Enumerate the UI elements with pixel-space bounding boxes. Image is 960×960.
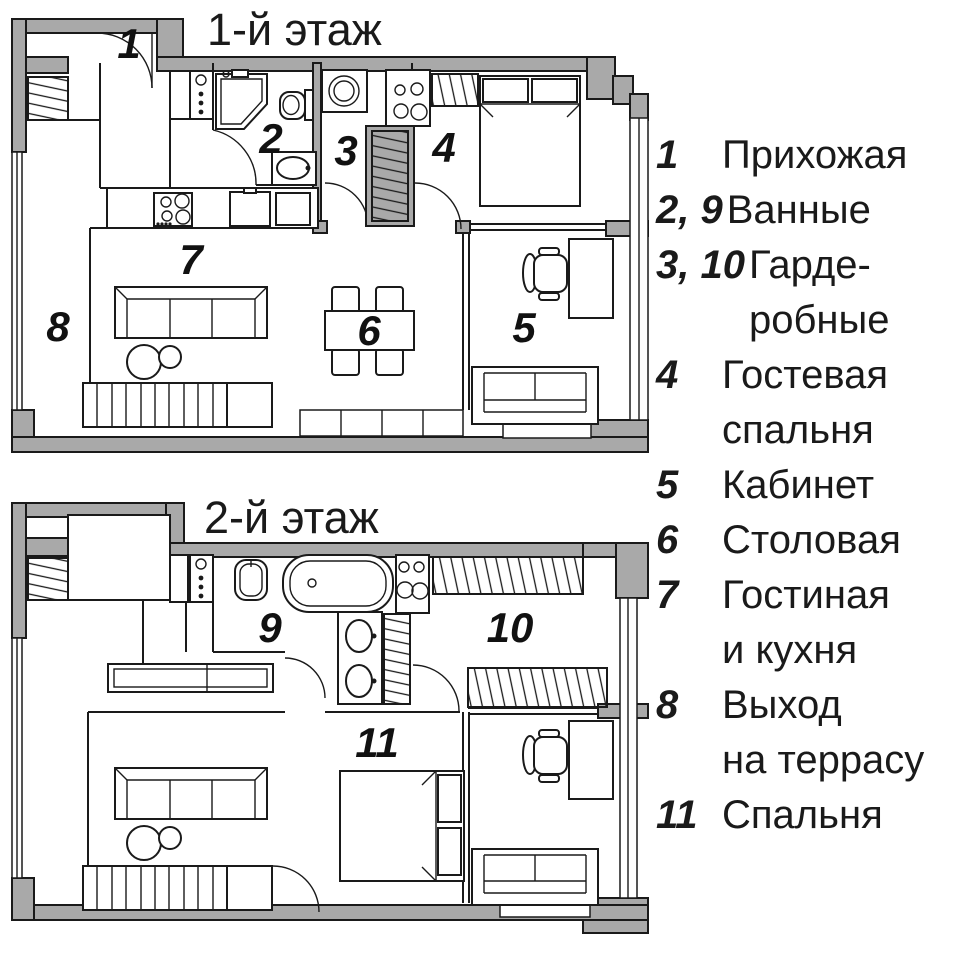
wardrobe10-door-arc — [413, 665, 459, 711]
office-chair-icon — [523, 248, 567, 300]
office5-furniture — [472, 239, 613, 424]
office2-furniture — [472, 721, 613, 905]
legend-item-2-9: 2, 9 Ванные — [656, 183, 956, 238]
legend-label: Гарде- — [749, 238, 890, 293]
floor1-plan — [12, 19, 648, 452]
legend-num: 3, 10 — [656, 238, 749, 293]
legend-label: Ванные — [727, 183, 871, 238]
floorplan-page: { "floor1": { "title": "1-й этаж", "labe… — [0, 0, 960, 960]
desk-icon — [569, 239, 613, 318]
linen-closet-hatch — [384, 614, 410, 704]
room3-appliances — [322, 70, 430, 126]
office-sofa2-icon — [472, 849, 598, 905]
kitchen-cabinet-icon — [276, 193, 310, 225]
legend-label: Спальня — [722, 788, 883, 843]
legend-num: 11 — [656, 788, 722, 843]
legend-num: 8 — [656, 678, 722, 733]
legend-item-3-10: 3, 10 Гарде-робные — [656, 238, 956, 348]
washer-column-icon — [190, 71, 213, 119]
hob-unit-icon — [386, 70, 430, 126]
room-label-4: 4 — [432, 124, 455, 172]
legend-label: Столовая — [722, 513, 901, 568]
hall-closet2-hatch — [28, 558, 68, 600]
office-chair2-icon — [523, 730, 567, 782]
legend-num: 7 — [656, 568, 722, 623]
bathroom-door-arc — [213, 130, 256, 185]
room-label-7: 7 — [179, 236, 202, 284]
room-label-11: 11 — [355, 719, 399, 767]
washing-machine-icon — [322, 70, 367, 112]
floor2-plan — [12, 503, 648, 933]
legend-label: Кабинет — [722, 458, 874, 513]
washer-column2-icon — [190, 555, 213, 602]
legend-item-7: 7 Гостинаяи кухня — [656, 568, 956, 678]
double-sink-icon — [338, 612, 382, 704]
terrace-window-2 — [12, 638, 22, 878]
dining-window — [300, 410, 463, 436]
legend-item-4: 4 Гостеваяспальня — [656, 348, 956, 458]
legend-num: 5 — [656, 458, 722, 513]
stairs2-icon — [83, 866, 272, 910]
bathtub-icon — [283, 555, 393, 612]
stairs-icon — [83, 383, 272, 427]
legend-num: 2, 9 — [656, 183, 727, 238]
legend-num: 1 — [656, 128, 722, 183]
right-window — [630, 118, 648, 420]
legend-label: Гостиная — [722, 568, 890, 623]
legend: 1 Прихожая 2, 9 Ванные 3, 10 Гарде-робны… — [656, 128, 956, 843]
legend-label: Выход — [722, 678, 924, 733]
guest-bed-icon — [480, 76, 580, 206]
kitchen-sink-cabinet-icon — [230, 188, 270, 226]
legend-item-5: 5 Кабинет — [656, 458, 956, 513]
bedroom4-rail-hatch — [432, 74, 478, 106]
room-label-2: 2 — [259, 115, 282, 163]
hall-closet-hatch — [28, 77, 68, 120]
legend-item-11: 11 Спальня — [656, 788, 956, 843]
wardrobe3-hatch — [366, 126, 414, 226]
legend-item-1: 1 Прихожая — [656, 128, 956, 183]
office-window-sill — [503, 424, 591, 438]
floor2-title: 2-й этаж — [204, 492, 379, 544]
room-label-8: 8 — [46, 303, 69, 351]
toilet2-icon — [235, 560, 267, 600]
cabinet-icon-2 — [170, 555, 188, 602]
room-label-9: 9 — [258, 604, 281, 652]
terrace-window — [12, 152, 22, 410]
coffee-tables2-icon — [127, 826, 181, 860]
cabinet-unit-icon — [108, 664, 273, 692]
corridor2-door-arc — [285, 658, 325, 698]
toilet-icon — [280, 90, 313, 120]
floor1-title: 1-й этаж — [207, 4, 382, 56]
desk2-icon — [569, 721, 613, 799]
cabinet-icon — [170, 71, 190, 119]
kitchen-counter — [107, 188, 318, 228]
office-sofa-icon — [472, 367, 598, 424]
room-label-6: 6 — [357, 307, 380, 355]
bed11-icon — [340, 771, 464, 881]
legend-num: 4 — [656, 348, 722, 403]
legend-num: 6 — [656, 513, 722, 568]
room-label-5: 5 — [512, 304, 535, 352]
bedroom4-door-arc — [415, 183, 461, 229]
sitting-sofa2-icon — [115, 768, 267, 819]
bathroom2-fixtures — [170, 70, 316, 185]
legend-item-8: 8 Выходна террасу — [656, 678, 956, 788]
room-label-1: 1 — [117, 20, 140, 68]
right-window-2 — [620, 598, 637, 898]
coffee-tables-icon — [127, 345, 181, 379]
legend-label: Прихожая — [722, 128, 907, 183]
living-sofa-icon — [115, 287, 267, 338]
room-label-10: 10 — [487, 604, 534, 652]
storage-box-icon — [68, 515, 170, 600]
legend-label: Гостевая — [722, 348, 888, 403]
washer-dryer-icon — [396, 555, 429, 613]
stove-icon — [154, 193, 192, 226]
room-label-3: 3 — [334, 127, 357, 175]
legend-item-6: 6 Столовая — [656, 513, 956, 568]
wardrobe3-door-arc — [325, 183, 368, 226]
